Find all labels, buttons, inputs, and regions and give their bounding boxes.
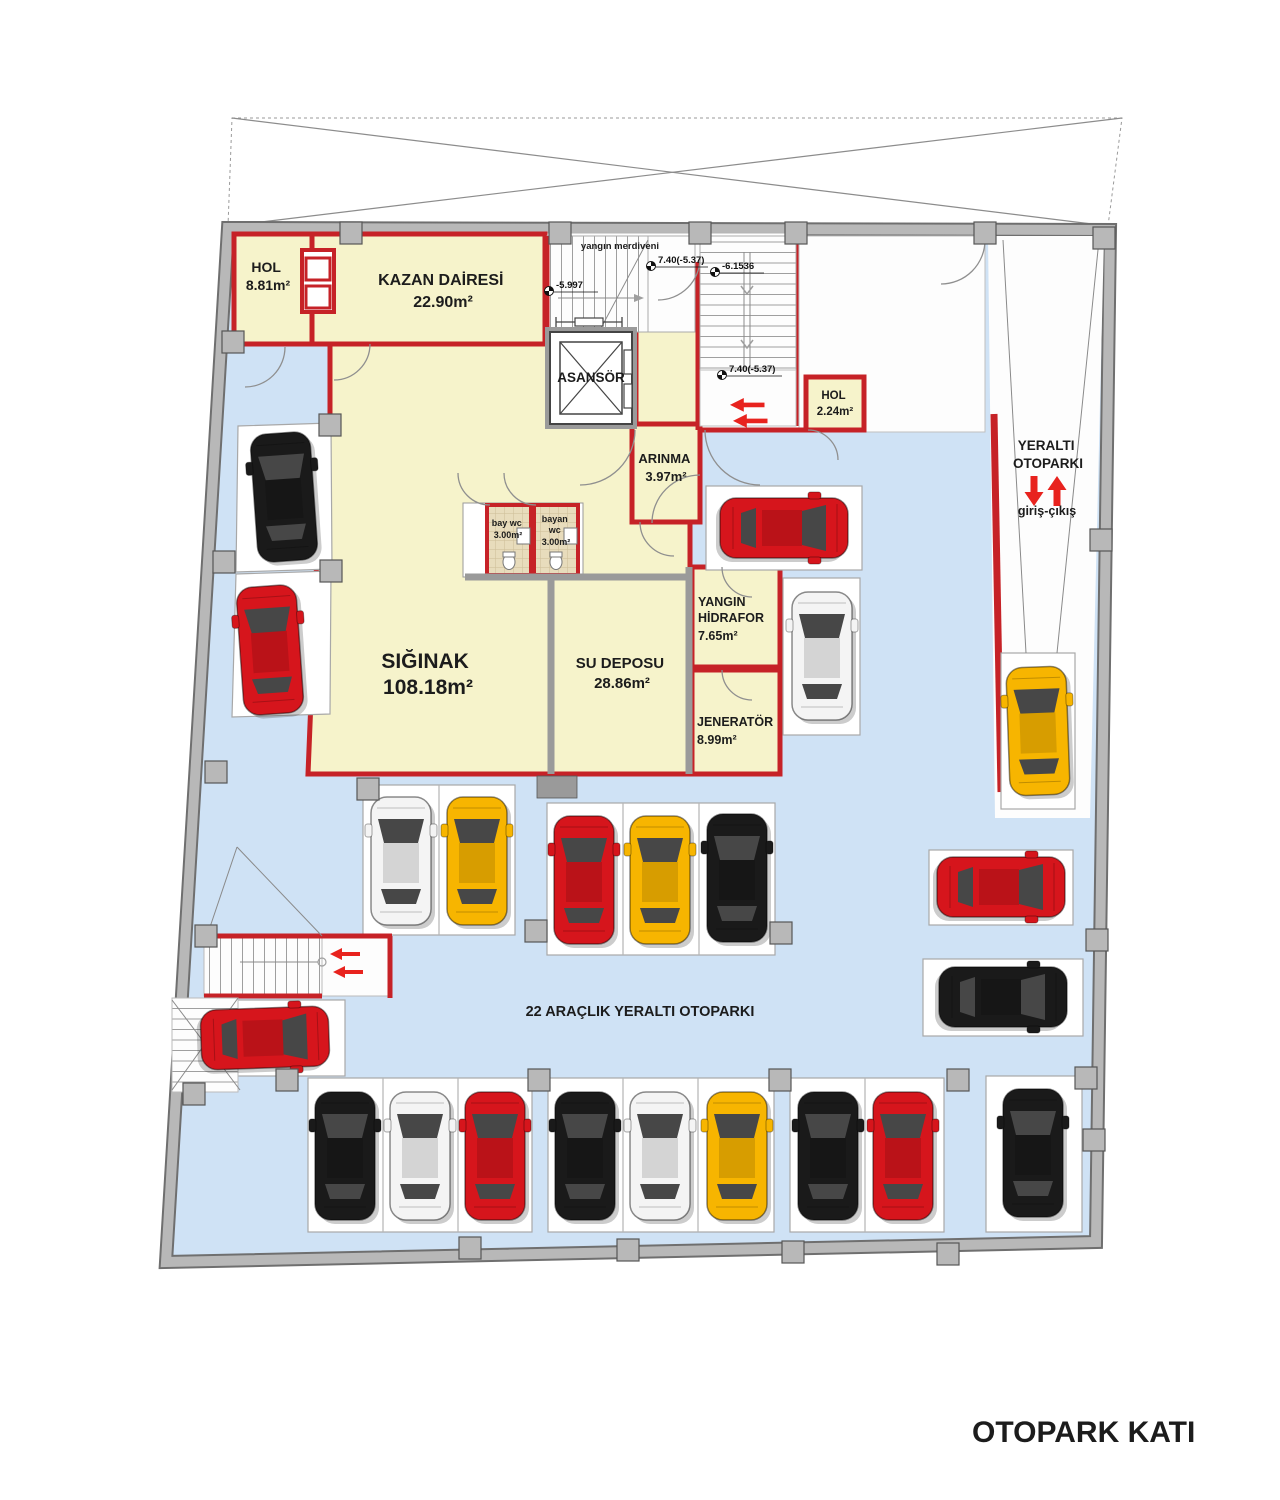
car-black — [935, 961, 1067, 1033]
car-red — [459, 1092, 531, 1224]
car-white — [365, 797, 437, 929]
fire-stairs-label: yangın merdiveni — [581, 241, 659, 252]
car-yellow — [624, 816, 696, 948]
room-kazan — [312, 234, 545, 344]
ramp-sub-label: giriş-çıkış — [1018, 504, 1076, 518]
car-yellow — [441, 797, 513, 929]
room-label-asansor: ASANSÖR — [557, 370, 625, 385]
car-black — [549, 1092, 621, 1224]
car-yellow — [701, 1092, 773, 1224]
page-title: OTOPARK KATI — [972, 1416, 1195, 1449]
floor-plan-drawing: -5.997 7.40(-5.37) -6.1536 7.40(-5.37) — [0, 0, 1280, 1500]
room-hol-tr — [806, 377, 864, 430]
car-white — [786, 592, 858, 724]
car-white — [384, 1092, 456, 1224]
car-red — [548, 816, 620, 948]
car-white — [624, 1092, 696, 1224]
level-value: -5.997 — [556, 280, 583, 291]
car-black — [997, 1089, 1069, 1221]
car-red — [716, 492, 848, 564]
car-red — [867, 1092, 939, 1224]
car-black — [309, 1092, 381, 1224]
floor-plan-page: -5.997 7.40(-5.37) -6.1536 7.40(-5.37) — [0, 0, 1280, 1500]
level-value: -6.1536 — [722, 261, 754, 272]
level-value: 7.40(-5.37) — [658, 255, 704, 266]
level-value: 7.40(-5.37) — [729, 364, 775, 375]
car-yellow — [1000, 666, 1077, 800]
car-black — [792, 1092, 864, 1224]
parking-note: 22 ARAÇLIK YERALTI OTOPARKI — [526, 1004, 755, 1020]
car-red — [933, 851, 1065, 923]
car-red — [196, 1000, 330, 1077]
car-black — [701, 814, 773, 946]
